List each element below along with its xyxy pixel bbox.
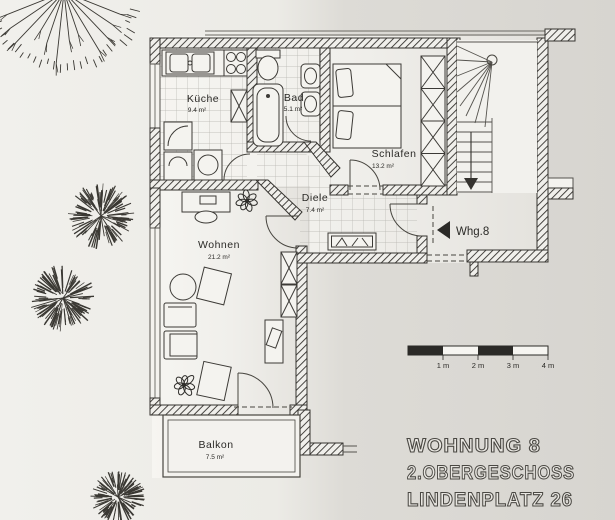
wardrobe [421,56,445,186]
scale-label-3m: 3 m [507,361,520,370]
staircase [457,40,537,193]
title-line-3: LINDENPLATZ 26 [407,490,573,511]
room-label-wohnen: Wohnen [198,239,240,251]
room-label-diele: Diele [302,192,328,204]
room-label-balkon: Balkon [198,439,233,451]
room-area-kueche: 9.4 m² [188,107,207,114]
scale-label-1m: 1 m [437,361,450,370]
scale-label-2m: 2 m [472,361,485,370]
room-area-balkon: 7.5 m² [206,454,225,461]
entrance-label: Whg.8 [456,226,489,238]
room-area-wohnen: 21.2 m² [208,254,231,261]
floor-plan-drawing: Küche 9.4 m² Bad 5.1 m² Schlafen 13.2 m²… [0,0,615,520]
room-area-diele: 7.4 m² [306,207,325,214]
room-label-bad: Bad [284,92,304,104]
room-area-schlafen: 13.2 m² [372,163,395,170]
room-area-bad: 5.1 m² [284,106,303,113]
room-label-schlafen: Schlafen [372,148,417,160]
scanned-floor-plan-page: Küche 9.4 m² Bad 5.1 m² Schlafen 13.2 m²… [0,0,615,520]
wardrobe [281,252,297,317]
title-line-2: 2.OBERGESCHOSS [407,463,575,484]
scale-label-4m: 4 m [542,361,555,370]
room-label-kueche: Küche [187,93,219,105]
title-line-1: WOHNUNG 8 [407,436,541,457]
